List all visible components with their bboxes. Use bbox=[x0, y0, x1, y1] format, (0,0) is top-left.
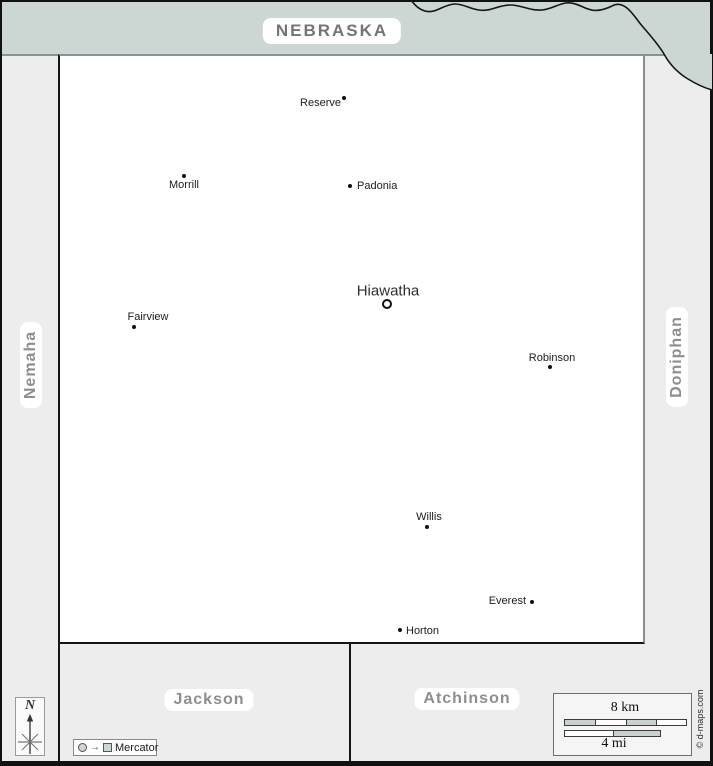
city-label-hiawatha: Hiawatha bbox=[357, 283, 420, 300]
city-label-reserve: Reserve bbox=[300, 97, 341, 109]
map-canvas: NEBRASKA Nemaha Doniphan Jackson Atchins… bbox=[0, 0, 713, 766]
projection-legend: → Mercator bbox=[73, 739, 157, 756]
jackson-atchinson-boundary bbox=[349, 644, 351, 761]
city-marker-fairview bbox=[132, 325, 136, 329]
city-label-fairview: Fairview bbox=[128, 311, 169, 323]
projected-square-icon bbox=[103, 743, 112, 752]
projection-name: Mercator bbox=[115, 742, 158, 754]
dmaps-credit: © d-maps.com bbox=[695, 690, 705, 749]
county-label-doniphan: Doniphan bbox=[666, 307, 688, 407]
nemaha-jackson-boundary bbox=[58, 644, 60, 761]
city-marker-willis bbox=[425, 525, 429, 529]
county-label-nemaha: Nemaha bbox=[20, 322, 42, 408]
city-label-padonia: Padonia bbox=[357, 180, 397, 192]
city-label-robinson: Robinson bbox=[529, 352, 575, 364]
compass: N bbox=[15, 697, 45, 756]
scale-km-bar bbox=[564, 719, 687, 726]
city-marker-robinson bbox=[548, 365, 552, 369]
city-label-morrill: Morrill bbox=[169, 179, 199, 191]
county-seat-marker-hiawatha bbox=[382, 299, 392, 309]
city-label-willis: Willis bbox=[416, 511, 442, 523]
city-marker-padonia bbox=[348, 184, 352, 188]
brown-county-area bbox=[58, 54, 645, 644]
city-marker-horton bbox=[398, 628, 402, 632]
compass-star-icon bbox=[16, 713, 44, 755]
globe-circle-icon bbox=[78, 743, 87, 752]
arrow-right-icon: → bbox=[90, 743, 100, 753]
scale-bar-box: 8 km 4 mi bbox=[553, 693, 692, 756]
city-label-everest: Everest bbox=[489, 595, 526, 607]
city-marker-everest bbox=[530, 600, 534, 604]
city-label-horton: Horton bbox=[406, 625, 439, 637]
county-label-atchinson: Atchinson bbox=[414, 688, 519, 710]
north-label: N bbox=[16, 698, 44, 713]
state-label-nebraska: NEBRASKA bbox=[263, 18, 401, 44]
city-marker-reserve bbox=[342, 96, 346, 100]
county-label-jackson: Jackson bbox=[164, 689, 253, 711]
scale-mi-label: 4 mi bbox=[601, 736, 626, 752]
scale-km-label: 8 km bbox=[611, 700, 639, 716]
city-marker-morrill bbox=[182, 174, 186, 178]
